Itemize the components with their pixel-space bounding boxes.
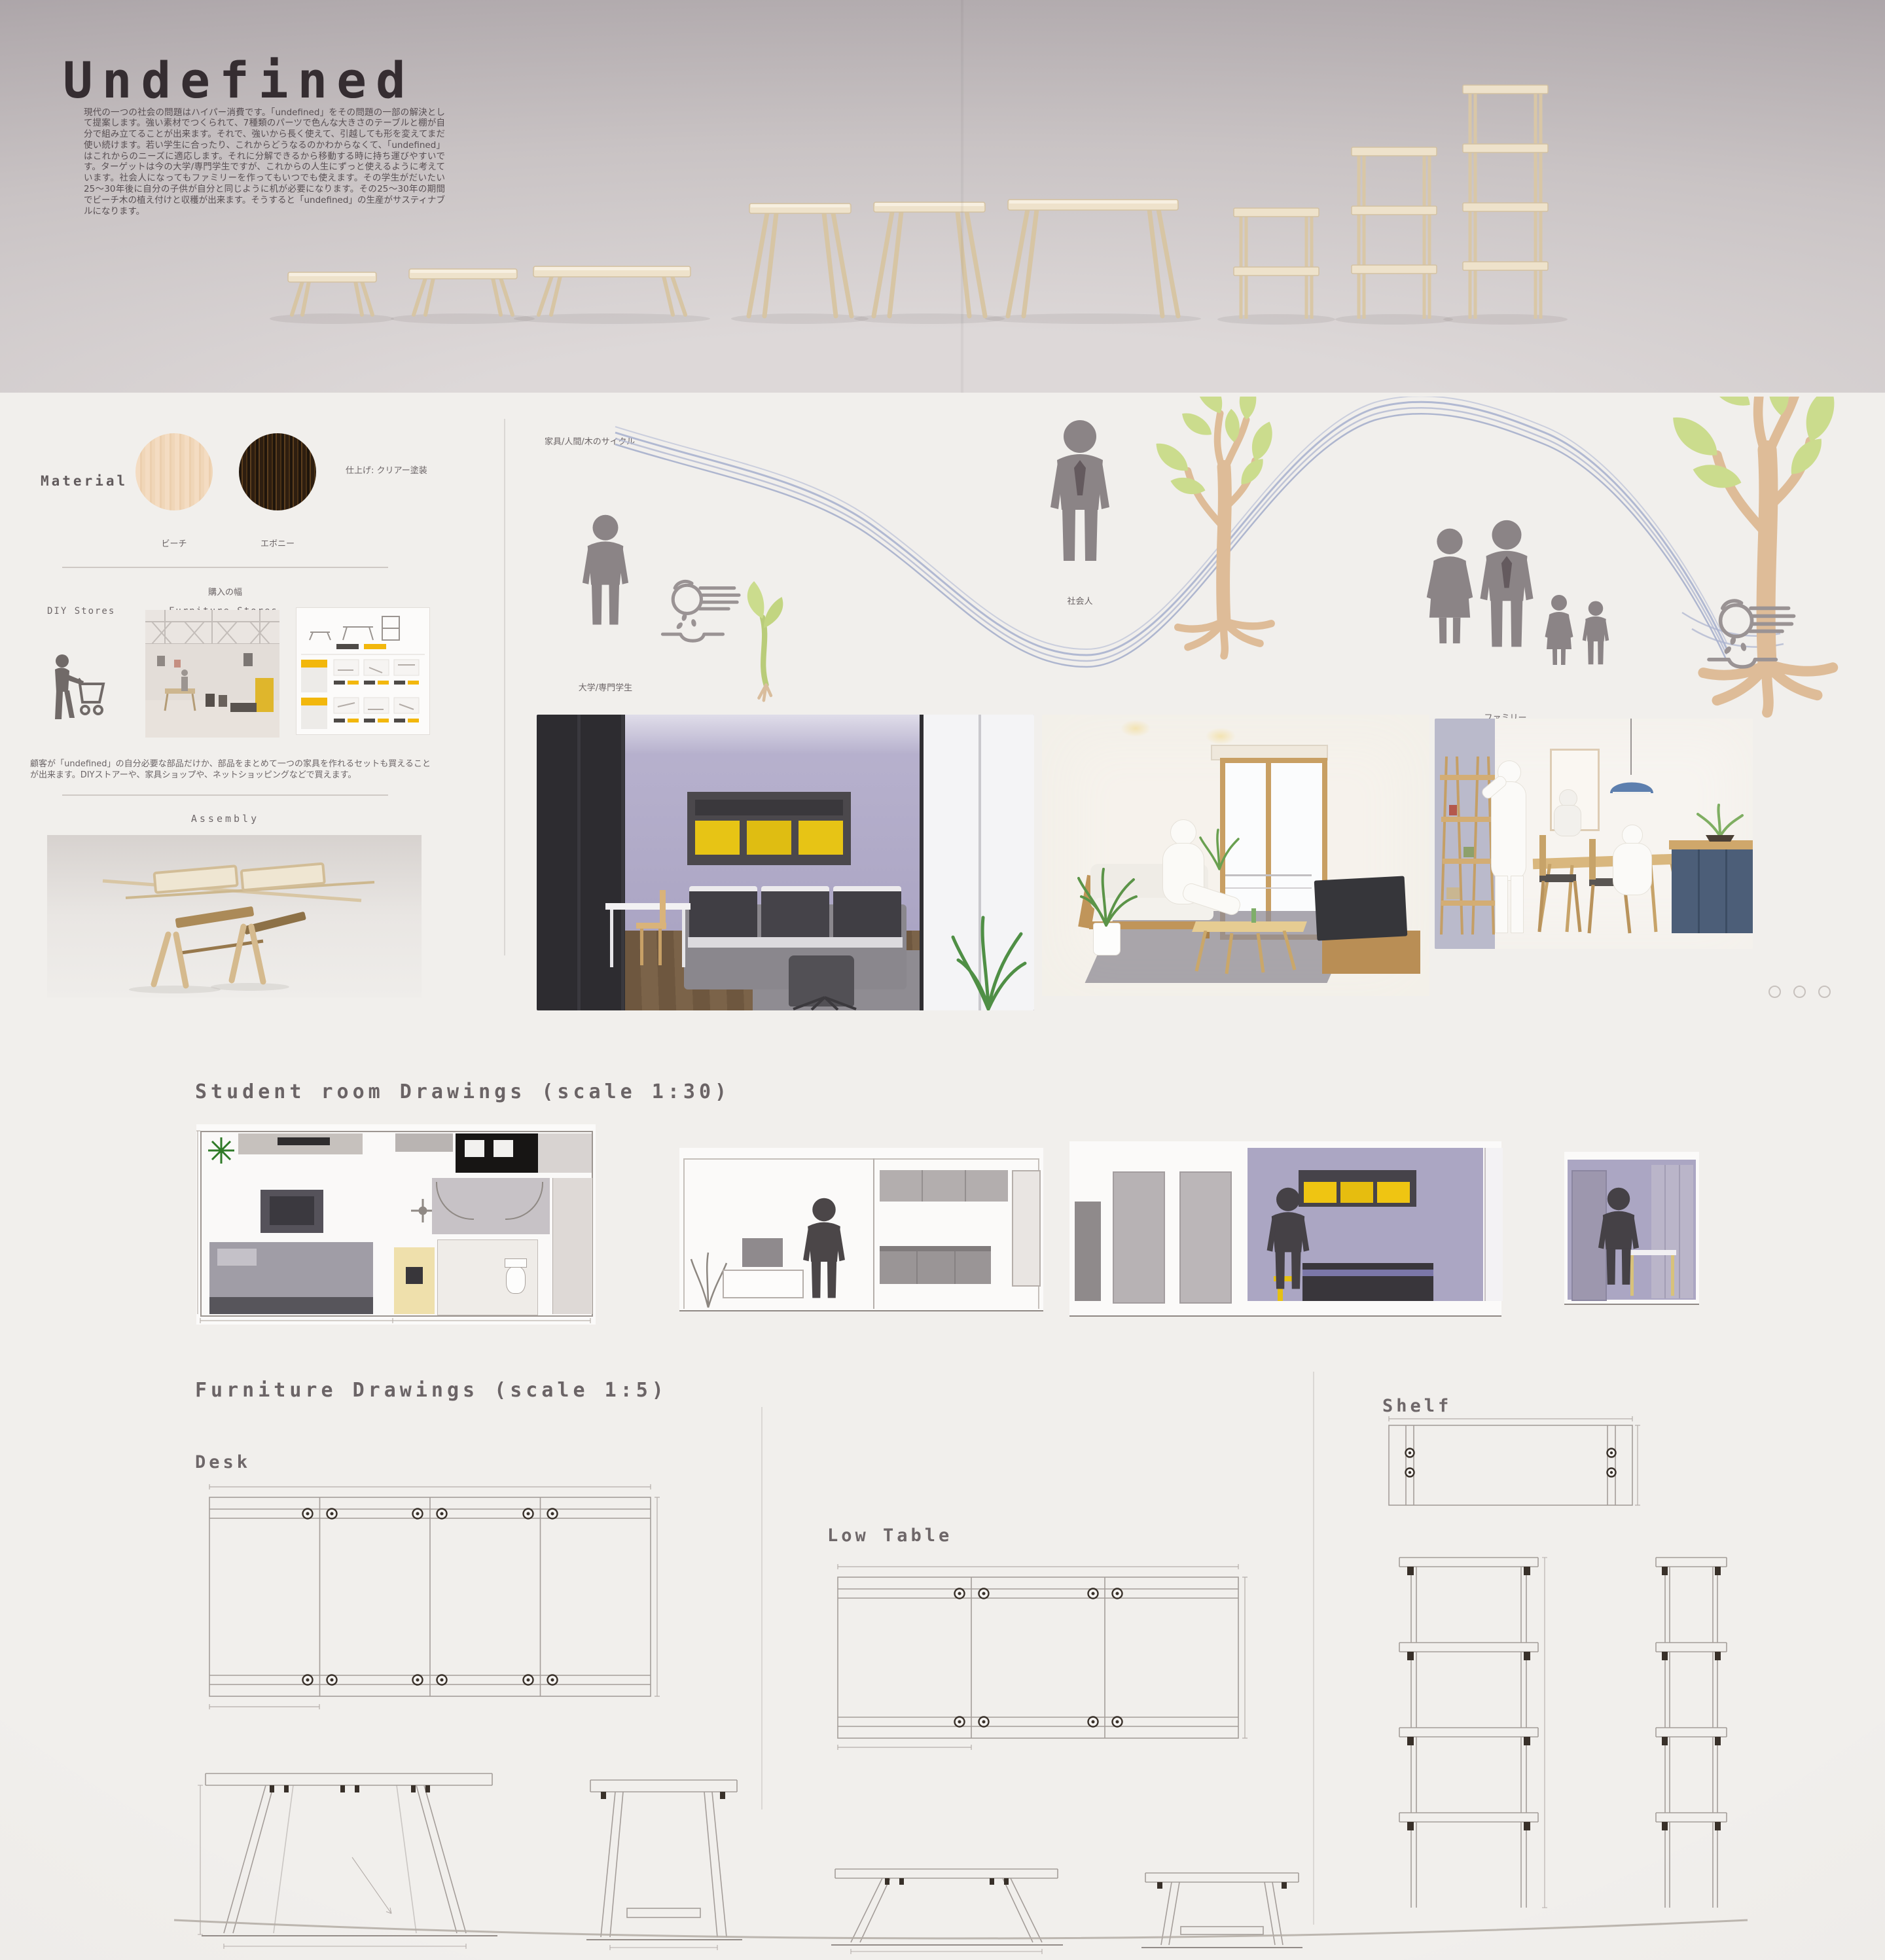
mannequin-seated-body	[1613, 843, 1652, 895]
sofa-elevation	[1302, 1263, 1433, 1301]
sketch-plant	[689, 1239, 728, 1309]
furniture-store-photo	[145, 610, 279, 738]
tv	[1314, 876, 1408, 940]
cart-person-icon	[46, 651, 108, 730]
plant-pot	[1093, 923, 1121, 955]
purple-wall	[1248, 1148, 1483, 1301]
ecommerce-mockup	[296, 607, 430, 735]
channel-label-diy: DIY Stores	[47, 606, 115, 616]
shelf-left	[1437, 750, 1498, 940]
shelf-plan-drawing	[1380, 1415, 1642, 1512]
desk-label: Desk	[195, 1452, 251, 1472]
upper-cabinets	[880, 1170, 1008, 1202]
hand-seed-icon-right	[1709, 601, 1794, 667]
pendant-lamp	[1609, 774, 1655, 796]
plant	[949, 898, 1028, 1010]
material-heading: Material	[41, 473, 128, 489]
adult-pictogram	[1050, 420, 1109, 561]
assembly-photo	[47, 835, 422, 997]
silhouette-2	[1258, 1187, 1318, 1302]
elevation-drawing-2	[1069, 1141, 1501, 1317]
poster-fold-seam	[961, 0, 963, 393]
floorplan-drawing	[196, 1124, 596, 1325]
door-2	[1179, 1171, 1232, 1304]
beech-swatch	[135, 433, 213, 510]
hero-photo-band: Undefined 現代の一つの社会の問題はハイパー消費です。「undefine…	[0, 0, 1885, 393]
intro-paragraph: 現代の一つの社会の問題はハイパー消費です。「undefined」をその問題の一部…	[84, 107, 445, 217]
sideboard-top	[1669, 840, 1753, 849]
mannequin-standing-body	[1491, 781, 1526, 881]
shelf-side-drawing	[1648, 1546, 1736, 1922]
cycle-diagram	[504, 397, 1885, 724]
shelf-front-drawing	[1389, 1546, 1549, 1922]
beech-label: ビーチ	[135, 537, 213, 549]
purchase-heading: 購入の幅	[62, 585, 388, 597]
purchase-divider	[62, 794, 388, 796]
cycle-label-adult: 社会人	[1034, 594, 1126, 607]
hand-seed-icon-left	[662, 581, 739, 641]
student-pictogram	[583, 515, 628, 625]
low-table-label: Low Table	[827, 1525, 952, 1546]
assembly-heading: Assembly	[62, 813, 388, 825]
finish-note: 仕上げ: クリアー塗装	[346, 463, 427, 476]
mannequin-head	[1170, 819, 1196, 846]
page-dot-1	[1768, 986, 1781, 998]
page-dot-2	[1793, 986, 1806, 998]
shelf-label: Shelf	[1382, 1396, 1452, 1416]
tv-stand	[723, 1270, 804, 1298]
page-dot-3	[1818, 986, 1831, 998]
tv	[742, 1238, 783, 1267]
purchase-note: 顧客が「undefined」の自分必要な部品だけか、部品をまとめて一つの家具を作…	[30, 758, 431, 781]
sprout-icon	[747, 581, 783, 700]
mature-tree-icon	[1669, 397, 1849, 713]
sideboard	[1672, 849, 1753, 933]
furniture-heading: Furniture Drawings (scale 1:5)	[195, 1379, 668, 1402]
plant-small	[1196, 825, 1242, 870]
tall-unit	[1012, 1170, 1041, 1287]
poster-title: Undefined	[63, 56, 415, 105]
sideboard-plant	[1694, 802, 1746, 842]
plant-left	[1076, 865, 1138, 927]
pendant-cord	[1630, 719, 1632, 775]
elevation-drawing-1	[679, 1148, 1043, 1311]
door-1	[1113, 1171, 1165, 1304]
wall-shelf	[687, 792, 851, 865]
student-room-heading: Student room Drawings (scale 1:30)	[195, 1080, 730, 1103]
desk	[605, 903, 691, 910]
desk-plan-drawing	[198, 1480, 662, 1716]
elevation-drawing-3	[1564, 1152, 1699, 1305]
section-divider-1	[761, 1407, 763, 1809]
silhouette-3	[1591, 1187, 1646, 1298]
kitchen-counter	[880, 1246, 991, 1284]
poster: Undefined 現代の一つの社会の問題はハイパー消費です。「undefine…	[0, 0, 1885, 1960]
section-divider-2	[1313, 1372, 1314, 1925]
low-table-plan-drawing	[829, 1561, 1248, 1751]
ebony-swatch	[239, 433, 316, 510]
render-living-room	[1042, 715, 1429, 996]
material-divider	[62, 567, 388, 568]
cycle-label-student: 大学/専門学生	[550, 681, 661, 693]
bottle	[1251, 908, 1256, 923]
ebony-label: エボニー	[238, 537, 317, 549]
silhouette-1	[795, 1198, 853, 1310]
render-dining-room	[1435, 719, 1753, 949]
family-pictogram	[1427, 520, 1609, 665]
ground-line	[169, 1910, 1753, 1959]
render-student-room	[537, 715, 1034, 1010]
